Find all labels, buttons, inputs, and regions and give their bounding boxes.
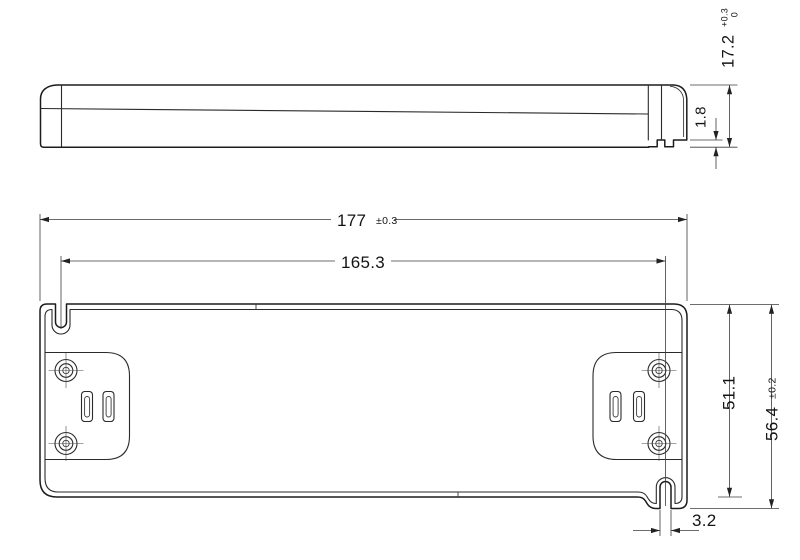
screw-boss-top-right [642,353,677,388]
dim-case-height-tol-lower: 0 [730,12,740,17]
dim-overall-width-value: 56.4 [763,407,782,441]
drawing-sheet: 17.2 +0.3 0 1.8 [0,0,800,560]
technical-drawing: 17.2 +0.3 0 1.8 [0,0,800,560]
wire-slots-left [82,392,115,422]
dim-slot-width-value: 3.2 [692,511,717,530]
svg-text:1.8: 1.8 [693,106,710,128]
dim-case-height-value: 17.2 [720,35,738,68]
dim-foot-standoff-value: 1.8 [693,106,710,128]
side-profile-view [41,85,687,147]
bottom-view-outline [40,304,687,509]
dim-foot-standoff: 1.8 [690,106,723,169]
svg-text:165.3: 165.3 [341,253,385,272]
wire-slots-right [610,392,645,422]
dim-case-height-tol-upper: +0.3 [720,8,730,27]
screw-boss-bottom-left [49,426,84,461]
dim-slot-spacing: 165.3 [61,253,666,506]
dim-slot-width: 3.2 [633,510,717,536]
side-view-corner-inner-line [670,86,684,137]
screw-boss-top-left [49,353,84,388]
dim-overall-width-tol: ±0.2 [767,377,779,399]
bottom-view-inner-rim [45,310,682,504]
side-view-outline [41,85,687,147]
svg-text:17.2 +0.3 0: 17.2 +0.3 0 [715,3,740,68]
svg-text:177 ±0.3: 177 ±0.3 [337,211,398,230]
dim-overall-length-value: 177 [337,211,366,230]
dim-body-width-value: 51.1 [720,376,739,410]
bottom-view [40,304,687,509]
svg-text:51.1: 51.1 [720,376,739,410]
svg-text:3.2: 3.2 [692,511,717,530]
dim-body-width: 51.1 [690,305,779,498]
side-view-seam-line [41,109,648,115]
dim-slot-spacing-value: 165.3 [341,253,385,272]
screw-boss-bottom-right [642,426,677,461]
svg-text:56.4 ±0.2: 56.4 ±0.2 [763,377,782,441]
dim-overall-length-tol: ±0.3 [376,215,398,227]
